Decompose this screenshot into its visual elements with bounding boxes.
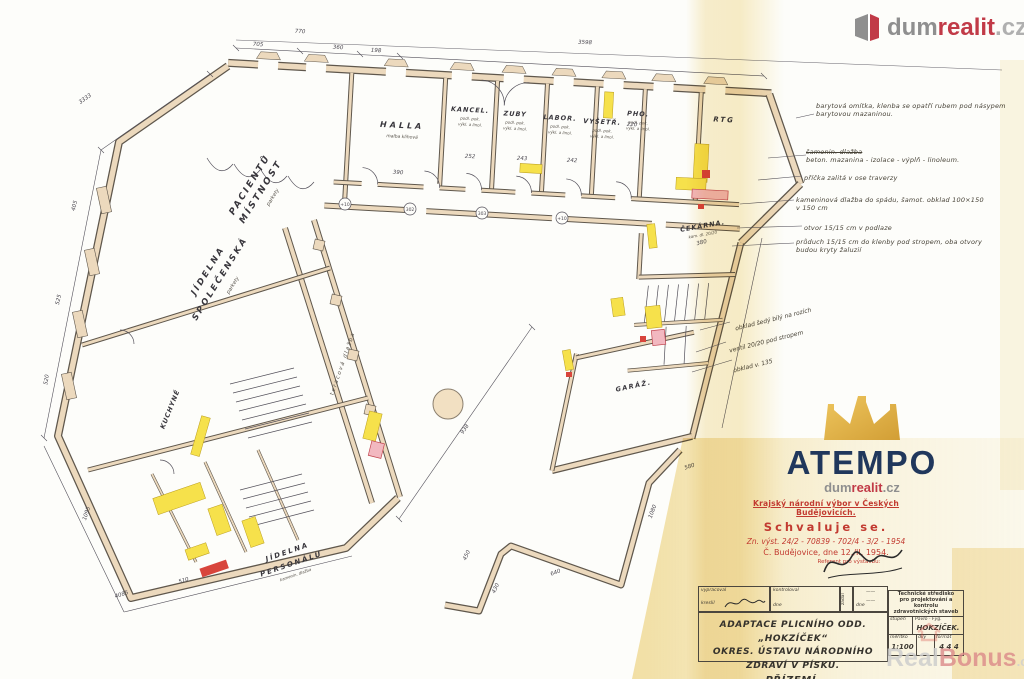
floor-finish-label: teracová dlažba (328, 331, 356, 396)
dumrealit-dum: dum (887, 14, 938, 41)
title-block-author-cell: vypracoval kreslil (698, 586, 770, 612)
level-mark-label: +10 (557, 216, 567, 222)
agency-line3: zdravotnických staveb (889, 610, 963, 616)
drawing-title-line3: PŘÍZEMÍ. (699, 673, 887, 679)
level-mark-label: 302 (406, 207, 415, 213)
realbonus-cz: .cz (1017, 654, 1024, 669)
title-block-zadal-cell: zadal (840, 586, 853, 612)
dumrealit-cz: .cz (995, 14, 1024, 41)
dim-label: 242 (567, 158, 578, 165)
atempo-watermark: ATEMPO dumrealit.cz (776, 390, 948, 495)
annotation-text: kameninová dlažba do spádu, šamot. obkla… (796, 196, 984, 212)
annotation-note: příčka zalitá v ose traverzy (804, 174, 984, 182)
dim-label: 220 (627, 122, 638, 129)
dim-label: 252 (465, 154, 476, 161)
agency-stamp-text: Technické středisko pro projektování a k… (889, 591, 963, 617)
annotation-note: průduch 15/15 cm do klenby pod stropem, … (796, 238, 1001, 255)
room-label: GARÁŽ. (615, 377, 653, 393)
dash-mark: —— (866, 599, 875, 604)
level-mark-label: 303 (478, 211, 487, 217)
realbonus-watermark: RealBonus.cz (886, 644, 1024, 673)
vypracoval-label: vypracoval (701, 588, 726, 593)
room-label: RTG (713, 115, 735, 124)
dim-label: 360 (333, 45, 344, 52)
title-block-date-cell: dne —— —— (853, 586, 888, 612)
room-label: LABOR. (543, 113, 577, 123)
room-finish-label: výkl. a linol. (458, 121, 482, 127)
dim-label: 380 (696, 239, 708, 247)
scanned-floorplan-page: +10 302 303 +10 PACIENTŮ MÍSTNOST parket… (0, 0, 1024, 679)
meritko-label: měřítko (890, 635, 908, 640)
annotation-text: barytová omítka, klenba se opatří rubem … (816, 102, 1006, 118)
drawing-title-line2: OKRES. ÚSTAVU NÁRODNÍHO ZDRAVÍ V PÍSKU. (699, 646, 887, 673)
facade-windows (256, 51, 728, 95)
annotation-text: průduch 15/15 cm do klenby pod stropem, … (796, 238, 982, 254)
annotation-note: kameninová dlažba do spádu, šamot. obkla… (796, 196, 986, 213)
dumrealit-house-icon (854, 12, 881, 43)
room-label: VYŠETŘ. (583, 116, 621, 127)
dim-label: 770 (295, 29, 306, 36)
dim-label: 390 (393, 170, 404, 177)
courtyard-tree (433, 389, 463, 419)
title-block-checker-cell: kontroloval dne (770, 586, 840, 612)
approval-signature (818, 540, 908, 582)
room-finish-label: malba klihová (386, 132, 418, 141)
dim-label: 243 (517, 156, 528, 163)
stamp-approval-text: Schvaluje se. (740, 520, 912, 534)
drawing-title: ADAPTACE PLICNÍHO ODD. „HOKZÍČEK“ OKRES.… (698, 612, 888, 662)
atempo-crown-icon (810, 390, 914, 442)
agency-line2: pro projektování a kontrolu (889, 598, 963, 610)
dash-mark: —— (866, 590, 875, 595)
room-label: ZUBY (502, 109, 527, 118)
dim-label: 640 (550, 568, 562, 577)
stupen-cell: stupeň (889, 617, 913, 634)
level-mark-label: +10 (340, 202, 350, 208)
dumrealit-logo: dumrealit.cz (854, 12, 1024, 43)
dumrealit-wordmark: dumrealit.cz (887, 16, 1024, 40)
drawing-title-line1: ADAPTACE PLICNÍHO ODD. „HOKZÍČEK“ (699, 619, 887, 646)
room-label: KANCEL. (451, 105, 490, 115)
dim-label: 938 (460, 423, 471, 435)
annotation-text: otvor 15/15 cm v podlaze (804, 224, 892, 232)
dim-label: 520 (43, 374, 51, 386)
dim-label: 1080 (648, 504, 659, 520)
atempo-cz: .cz (883, 480, 900, 495)
atempo-dum: dum (824, 480, 851, 495)
annotation-note: barytová omítka, klenba se opatří rubem … (816, 102, 1016, 119)
stamp-authority: Krajský národní výbor v Českých Budějovi… (740, 499, 912, 517)
kontroloval-label: kontroloval (773, 588, 799, 593)
atempo-wordmark: ATEMPO (776, 446, 948, 479)
stupen-label: stupeň (890, 617, 906, 622)
room-label: PHO. (627, 109, 649, 118)
room-finish-label: výkl. a linol. (548, 129, 572, 135)
dne-label: dne (773, 603, 782, 608)
dim-label: 580 (684, 462, 696, 471)
dim-label: 3598 (578, 40, 593, 47)
dim-label: 198 (371, 48, 382, 55)
kreslil-signature (723, 595, 767, 611)
dim-label: 3333 (78, 92, 93, 105)
room-label: HALLA (380, 120, 425, 131)
annotation-text: beton. mazanina - izolace - výplň - lino… (806, 156, 959, 164)
atempo-sub-wordmark: dumrealit.cz (776, 480, 948, 495)
room-finish-label: parkety (225, 275, 241, 296)
dim-label: 450 (462, 549, 472, 562)
atempo-realit: realit (852, 480, 883, 495)
realbonus-bonus: Bonus (939, 644, 1017, 672)
zadal-label: zadal (841, 587, 852, 611)
kreslil-label: kreslil (701, 601, 715, 606)
room-label: KUCHYNĚ (158, 388, 182, 430)
realbonus-house-icon (916, 622, 942, 642)
dim-label: 405 (71, 199, 79, 211)
dim-label: 705 (253, 42, 264, 49)
realbonus-real: Real (886, 644, 939, 672)
stairs-west (230, 368, 312, 438)
annotation-note: otvor 15/15 cm v podlaze (804, 224, 984, 232)
dumrealit-realit: realit (938, 14, 995, 41)
annotation-text: příčka zalitá v ose traverzy (804, 174, 898, 182)
courtyard-boundary-wall (445, 450, 680, 611)
dim-label: 525 (55, 294, 63, 306)
annotation-note: šamonin. dlažba beton. mazanina - izolac… (806, 148, 1018, 165)
dne-label: dne (856, 603, 865, 608)
room-finish-label: výkl. a linol. (503, 125, 527, 131)
annotation-struck-text: šamonin. dlažba (806, 148, 862, 156)
